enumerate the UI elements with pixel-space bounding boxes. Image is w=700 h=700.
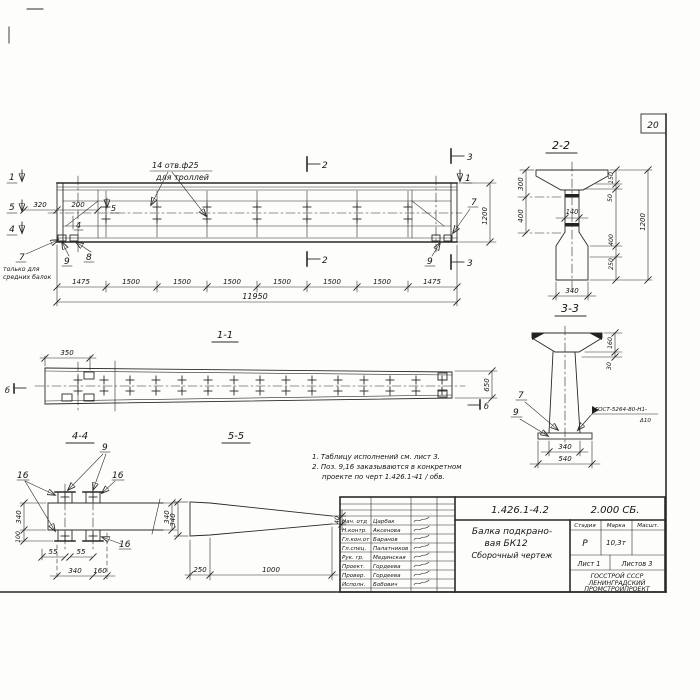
dim-44-55b: 55 bbox=[77, 548, 86, 556]
sig-role-6: Провер. bbox=[342, 573, 365, 579]
section-2-2-linework bbox=[518, 153, 652, 300]
dim-22-150: 150 bbox=[608, 172, 615, 184]
sig-name-5: Гордеева bbox=[373, 564, 401, 570]
dim-33-30: 30 bbox=[606, 362, 613, 370]
sheet-frame bbox=[0, 9, 666, 592]
section-3-3-linework bbox=[511, 316, 658, 468]
marker-5-left: 5 bbox=[9, 203, 15, 213]
sig-name-4: Мединская bbox=[373, 555, 406, 561]
dim-1200-main bbox=[459, 180, 496, 245]
dim-1200-main-label: 1200 bbox=[481, 207, 489, 225]
dim-22-340: 340 bbox=[565, 287, 579, 295]
header-stage: Стадия bbox=[574, 523, 596, 529]
marker-4-inner: 4 bbox=[76, 221, 81, 230]
pos-9-left: 9 bbox=[64, 257, 70, 267]
section-2-bottom-label: 2 bbox=[322, 256, 328, 266]
dim-chain-6: 1500 bbox=[373, 278, 391, 286]
dim-44-100: 100 bbox=[15, 531, 22, 543]
sig-role-5: Проект. bbox=[342, 564, 365, 570]
view-1-1-linework bbox=[14, 342, 497, 411]
sig-name-7: Бобович bbox=[373, 582, 398, 588]
dim-22-250: 250 bbox=[608, 258, 615, 270]
title-line2: вая БК12 bbox=[484, 539, 527, 549]
marker-b-left: б bbox=[5, 386, 10, 395]
sig-name-2: Баранов bbox=[373, 537, 398, 543]
dim-33-540: 540 bbox=[558, 455, 572, 463]
section-2-top-label: 2 bbox=[322, 161, 328, 171]
section-3-bottom-label: 3 bbox=[467, 259, 473, 269]
dim-22-140: 140 bbox=[566, 208, 579, 216]
pos7-note-line1: только для bbox=[3, 266, 40, 273]
dim-320: 320 bbox=[33, 201, 47, 209]
note-line1: 1. Таблицу исполнений см. лист 3. bbox=[312, 453, 440, 461]
dim-chain-2: 1500 bbox=[173, 278, 191, 286]
dim-44-340-bottom: 340 bbox=[68, 567, 82, 575]
sig-name-0: Царбак bbox=[373, 519, 395, 525]
marker-1-right: 1 bbox=[465, 174, 471, 184]
title-line3: Сборочный чертеж bbox=[472, 551, 554, 560]
view-4-4-label: 4-4 bbox=[72, 431, 88, 442]
pos-7-left: 7 bbox=[19, 253, 25, 263]
dim-chain-7: 1475 bbox=[423, 278, 441, 286]
dim-200: 200 bbox=[71, 201, 85, 209]
dim-total: 11950 bbox=[242, 292, 267, 301]
dim-22-300: 300 bbox=[517, 177, 525, 191]
marker-4-left: 4 bbox=[9, 225, 15, 235]
sig-name-3: Палатников bbox=[373, 546, 408, 552]
view-4-4-linework bbox=[17, 443, 177, 580]
dim-44-55a: 55 bbox=[49, 548, 58, 556]
header-scale: Масшт. bbox=[637, 523, 659, 529]
dim-chain-1: 1500 bbox=[122, 278, 140, 286]
dim-chain-4: 1500 bbox=[273, 278, 291, 286]
note-line3: проекте по черт 1.426.1-41 / обв. bbox=[322, 473, 445, 481]
pos-7-33: 7 bbox=[518, 391, 524, 401]
sheet-info-sheets: Листов 3 bbox=[621, 560, 653, 568]
sheet-number: 20 bbox=[647, 121, 659, 131]
pos-7-right: 7 bbox=[471, 198, 477, 208]
section-3-top-label: 3 bbox=[467, 153, 473, 163]
pos-16-left: 16 bbox=[17, 471, 29, 481]
pos-9-44: 9 bbox=[102, 443, 108, 453]
marker-5-inner: 5 bbox=[111, 204, 116, 213]
dim-22-1200: 1200 bbox=[639, 213, 647, 231]
pos-16-right: 16 bbox=[112, 471, 124, 481]
value-stage: Р bbox=[582, 539, 588, 549]
dim-33-160: 160 bbox=[607, 337, 614, 349]
dim-350: 350 bbox=[60, 349, 74, 357]
sig-role-0: Нач. отд bbox=[342, 519, 367, 525]
note-line2: 2. Поз. 9,16 заказываются в конкретном bbox=[312, 463, 462, 471]
section-3-3-label: 3-3 bbox=[561, 302, 579, 315]
header-mark: Марка bbox=[607, 523, 626, 529]
doc-number: 1.426.1-4.2 bbox=[491, 505, 549, 516]
sig-name-1: Аксенова bbox=[372, 528, 401, 534]
section-cut-marks bbox=[307, 149, 464, 269]
sig-role-2: Гл.кон.от bbox=[342, 537, 370, 543]
dim-22-400-right: 400 bbox=[608, 234, 615, 246]
sig-role-1: Н.контр. bbox=[342, 528, 367, 534]
hole-note-line1: 14 отв.ф25 bbox=[152, 161, 199, 170]
weld-note-line2: Δ10 bbox=[639, 418, 651, 424]
dim-chain-0: 1475 bbox=[72, 278, 90, 286]
dim-55-250: 250 bbox=[193, 566, 207, 574]
dim-44-340-left: 340 bbox=[15, 510, 23, 524]
sheet-info-sheet: Лист 1 bbox=[576, 560, 600, 568]
drawing-sheet: { "sheet": {"number": "20"}, "main_view"… bbox=[0, 0, 700, 700]
marker-1-left: 1 bbox=[9, 173, 15, 183]
view-1-1-label: 1-1 bbox=[217, 330, 233, 341]
dim-55-340: 340 bbox=[169, 513, 177, 527]
sig-name-6: Гордеева bbox=[373, 573, 401, 579]
dim-44-160: 160 bbox=[93, 567, 107, 575]
pos7-note-line2: средних балок bbox=[3, 273, 51, 281]
sig-role-4: Рук. гр. bbox=[342, 555, 364, 561]
org-line1: ГОССТРОЙ СССР bbox=[591, 571, 644, 580]
dim-22-400-left: 400 bbox=[517, 209, 525, 223]
title-line1: Балка подкрано- bbox=[472, 527, 552, 537]
value-mass: 10,3т bbox=[606, 539, 627, 547]
dim-650: 650 bbox=[483, 378, 491, 392]
doc-code: 2.000 СБ. bbox=[591, 505, 640, 516]
pos-8: 8 bbox=[86, 253, 92, 263]
view-5-5-label: 5-5 bbox=[228, 431, 244, 442]
dim-33-340: 340 bbox=[558, 443, 572, 451]
dim-chain-5: 1500 bbox=[323, 278, 341, 286]
org-line3: ПРОМСТРОЙПРОЕКТ bbox=[584, 584, 650, 593]
marker-b-right: б bbox=[484, 402, 489, 411]
main-elevation-linework bbox=[48, 176, 462, 252]
sig-role-3: Гл.спец. bbox=[342, 546, 366, 552]
dim-22-50: 50 bbox=[607, 194, 614, 202]
pos-16-bottom: 16 bbox=[119, 540, 131, 550]
sig-role-7: Исполн. bbox=[342, 582, 366, 588]
dim-55-1000: 1000 bbox=[262, 566, 280, 574]
weld-note-line1: ГОСТ-5264-80-Н1- bbox=[595, 407, 647, 413]
hole-note-line2: для троллей bbox=[155, 173, 209, 182]
pos-9-33: 9 bbox=[513, 408, 519, 418]
drawing-canvas: 20 14 отв.ф25 bbox=[0, 0, 700, 700]
dim-chain-3: 1500 bbox=[223, 278, 241, 286]
section-2-2-label: 2-2 bbox=[552, 139, 570, 152]
pos-9-right: 9 bbox=[427, 257, 433, 267]
